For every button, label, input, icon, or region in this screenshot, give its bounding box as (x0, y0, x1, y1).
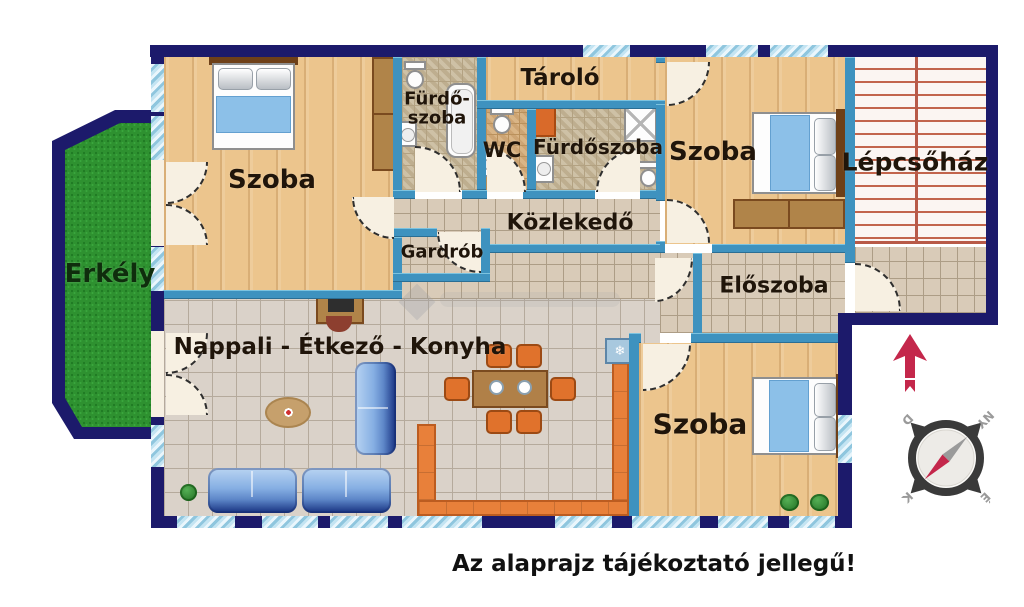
wall (693, 253, 702, 338)
room-label-kozlekedo: Közlekedő (507, 211, 634, 236)
wall (462, 190, 487, 199)
toilet-tank (637, 161, 658, 169)
room-label-nappali: Nappali - Étkező - Konyha (174, 334, 507, 360)
door-opening (151, 331, 164, 417)
window (151, 425, 164, 467)
window (770, 45, 828, 57)
room-label-erkely: Erkély (65, 259, 156, 289)
room-label-tarolo: Tároló (520, 65, 599, 91)
window (718, 516, 768, 528)
watermark-text (440, 292, 620, 307)
bed-blanket (216, 96, 291, 133)
toilet-bowl (406, 70, 424, 89)
room-label-wc: WC (483, 138, 522, 162)
room-label-furdoszoba: Fürdőszoba (533, 135, 663, 159)
window (151, 64, 164, 112)
chair (444, 377, 470, 401)
sofa-cushion-line (358, 407, 388, 409)
sink-basin (537, 162, 551, 176)
wall (393, 228, 437, 237)
room-label-lepcsohaz: Lépcsőház (842, 148, 989, 177)
wall-exterior (986, 45, 998, 325)
wall (477, 100, 665, 109)
bed-blanket (770, 115, 810, 191)
door-opening (151, 160, 164, 246)
disclaimer-text: Az alaprajz tájékoztató jellegű! (452, 551, 856, 577)
wall (393, 273, 490, 282)
dresser (733, 199, 845, 229)
plate (489, 380, 504, 395)
room-label-szoba-topright: Szoba (669, 137, 757, 167)
pillow (256, 68, 291, 90)
toilet-bowl (640, 169, 657, 187)
wall-exterior (845, 313, 998, 325)
wall (712, 244, 845, 253)
chair (516, 344, 542, 368)
rug-flower (283, 407, 294, 418)
toilet-bowl (493, 115, 511, 134)
wall (523, 190, 595, 199)
kitchen-counter (417, 500, 629, 516)
window (177, 516, 235, 528)
wall (486, 244, 660, 253)
wall (160, 290, 402, 299)
window (151, 116, 164, 160)
north-arrow-icon (892, 334, 928, 392)
toilet-tank (404, 61, 426, 70)
dining-table (472, 370, 548, 408)
room-label-szoba-bottom: Szoba (653, 408, 748, 441)
snowflake-icon: ❄ (615, 344, 626, 359)
window (632, 516, 700, 528)
bed-blanket (769, 380, 809, 452)
window (838, 415, 852, 463)
wall (393, 57, 402, 197)
plant (180, 484, 197, 501)
wall (393, 190, 415, 199)
wall (629, 333, 639, 518)
window (706, 45, 758, 57)
pillow (814, 155, 836, 191)
wall (691, 333, 848, 343)
chair (516, 410, 542, 434)
pillow (814, 383, 836, 417)
window (262, 516, 318, 528)
stairs-edge (855, 241, 986, 244)
kitchen-counter (417, 424, 436, 502)
window (330, 516, 388, 528)
room-label-eloszoba: Előszoba (719, 274, 828, 299)
sofa-cushion-line (251, 471, 253, 497)
room-label-szoba-topleft: Szoba (228, 165, 316, 195)
pillow (814, 118, 836, 155)
laptop (328, 299, 354, 312)
pillow (218, 68, 253, 90)
window (583, 45, 630, 57)
room-label-furdoszoba-small-line2: szoba (408, 108, 467, 129)
room-label-gardrob: Gardrób (401, 242, 484, 263)
kitchen-counter (612, 362, 629, 502)
sink-basin (401, 128, 415, 142)
window (789, 516, 835, 528)
plate (517, 380, 532, 395)
window (402, 516, 482, 528)
wall (656, 57, 665, 63)
compass-icon: É D NY K (884, 396, 1008, 520)
plant (780, 494, 799, 511)
floor-plan: ❄ (0, 0, 1024, 607)
wall-exterior (150, 45, 998, 57)
pillow (814, 417, 836, 451)
chair (550, 377, 576, 401)
plant (810, 494, 829, 511)
window (555, 516, 612, 528)
sofa-cushion-line (345, 471, 347, 497)
chair (486, 410, 512, 434)
room-label-furdoszoba-small-line1: Fürdő- (404, 89, 470, 110)
wall (477, 57, 486, 190)
